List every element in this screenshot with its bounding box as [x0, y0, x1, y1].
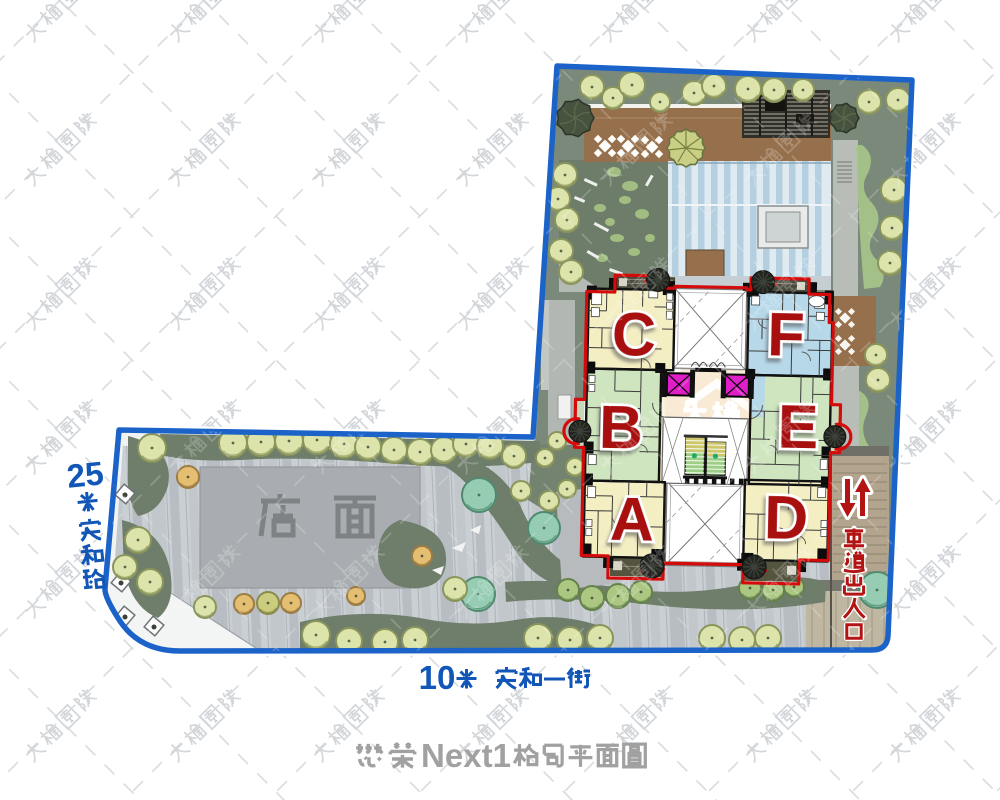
svg-text:D: D [763, 483, 808, 552]
svg-text:C: C [611, 300, 656, 369]
svg-text:10: 10 [419, 659, 456, 696]
svg-text:25: 25 [65, 454, 105, 495]
svg-text:Next1: Next1 [421, 737, 511, 774]
svg-text:A: A [609, 485, 654, 554]
svg-text:F: F [767, 300, 806, 369]
